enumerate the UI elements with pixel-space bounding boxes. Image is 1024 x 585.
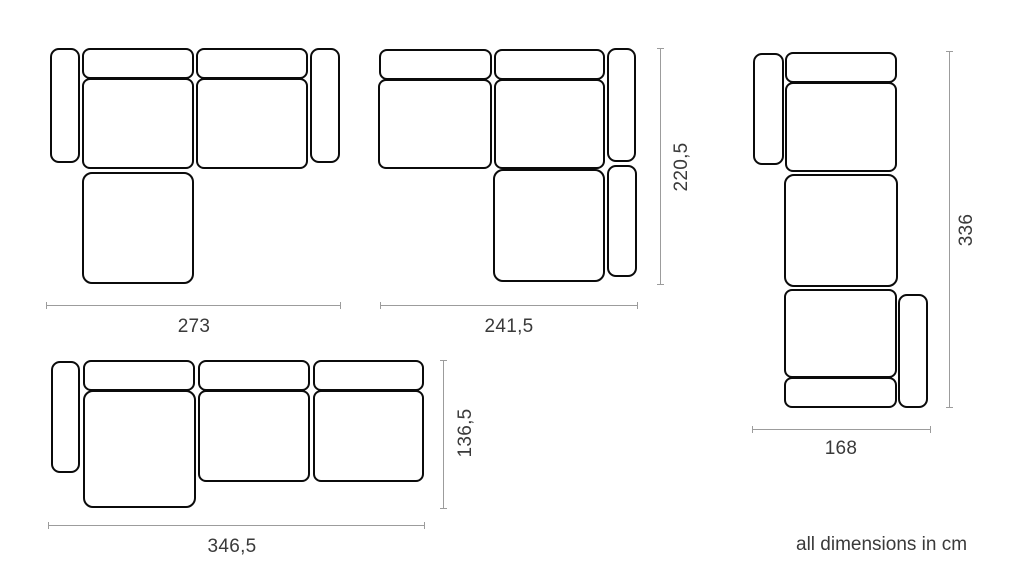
seat-2 <box>198 390 310 482</box>
armrest-left <box>51 361 80 473</box>
dim-line <box>752 429 931 430</box>
seat-2 <box>494 79 605 169</box>
dim-line <box>660 48 661 285</box>
backrest-bottom <box>784 377 897 408</box>
dim-tick <box>946 51 953 52</box>
dim-tick <box>752 426 753 433</box>
armrest-left <box>50 48 80 163</box>
dim-tick <box>657 48 664 49</box>
seat-2 <box>784 174 898 287</box>
backrest-1 <box>83 360 195 391</box>
dim-tick <box>930 426 931 433</box>
dim-tick <box>48 522 49 529</box>
backrest-1 <box>82 48 194 79</box>
dim-label: 336 <box>956 214 978 247</box>
dim-label: 241,5 <box>484 316 533 338</box>
backrest-1 <box>379 49 492 80</box>
seat-1 <box>82 78 194 169</box>
sofa-config-chaise-left-3seat: 136,5346,5 <box>0 0 1024 585</box>
dim-tick <box>380 302 381 309</box>
seat-3 <box>784 289 897 378</box>
sofa-config-chaise-right-2seat: 220,5241,5 <box>0 0 1024 585</box>
seat-1 <box>785 82 897 172</box>
seat-3 <box>313 390 424 482</box>
chaise-seat <box>82 172 194 284</box>
dim-tick <box>946 407 953 408</box>
armrest-right <box>898 294 928 408</box>
dim-tick <box>440 508 447 509</box>
units-note: all dimensions in cm <box>796 534 967 556</box>
dim-label: 136,5 <box>455 408 477 457</box>
dim-line <box>46 305 341 306</box>
sofa-config-chaise-left-2seat: 273 <box>0 0 1024 585</box>
backrest-3 <box>313 360 424 391</box>
armrest-left <box>753 53 784 165</box>
dim-tick <box>440 360 447 361</box>
dim-line <box>949 51 950 408</box>
armrest-right <box>310 48 340 163</box>
sofa-dimension-diagram: 273220,5241,5336168136,5346,5 all dimens… <box>0 0 1024 585</box>
dim-line <box>443 360 444 509</box>
dim-label: 346,5 <box>207 536 256 558</box>
backrest-2 <box>494 49 605 80</box>
backrest-2 <box>196 48 308 79</box>
seat-2 <box>196 78 308 169</box>
backrest-top <box>785 52 897 83</box>
dim-tick <box>424 522 425 529</box>
dim-label: 168 <box>825 438 858 460</box>
chaise-seat <box>493 169 605 282</box>
sofa-config-vertical-3seat: 336168 <box>0 0 1024 585</box>
dim-label: 220,5 <box>671 142 693 191</box>
dim-tick <box>340 302 341 309</box>
dim-label: 273 <box>178 316 211 338</box>
seat-1 <box>378 79 492 169</box>
armrest-right-lower <box>607 165 637 277</box>
chaise-seat <box>83 390 196 508</box>
dim-tick <box>657 284 664 285</box>
dim-tick <box>637 302 638 309</box>
dim-line <box>48 525 425 526</box>
armrest-right-upper <box>607 48 636 162</box>
dim-tick <box>46 302 47 309</box>
backrest-2 <box>198 360 310 391</box>
dim-line <box>380 305 638 306</box>
